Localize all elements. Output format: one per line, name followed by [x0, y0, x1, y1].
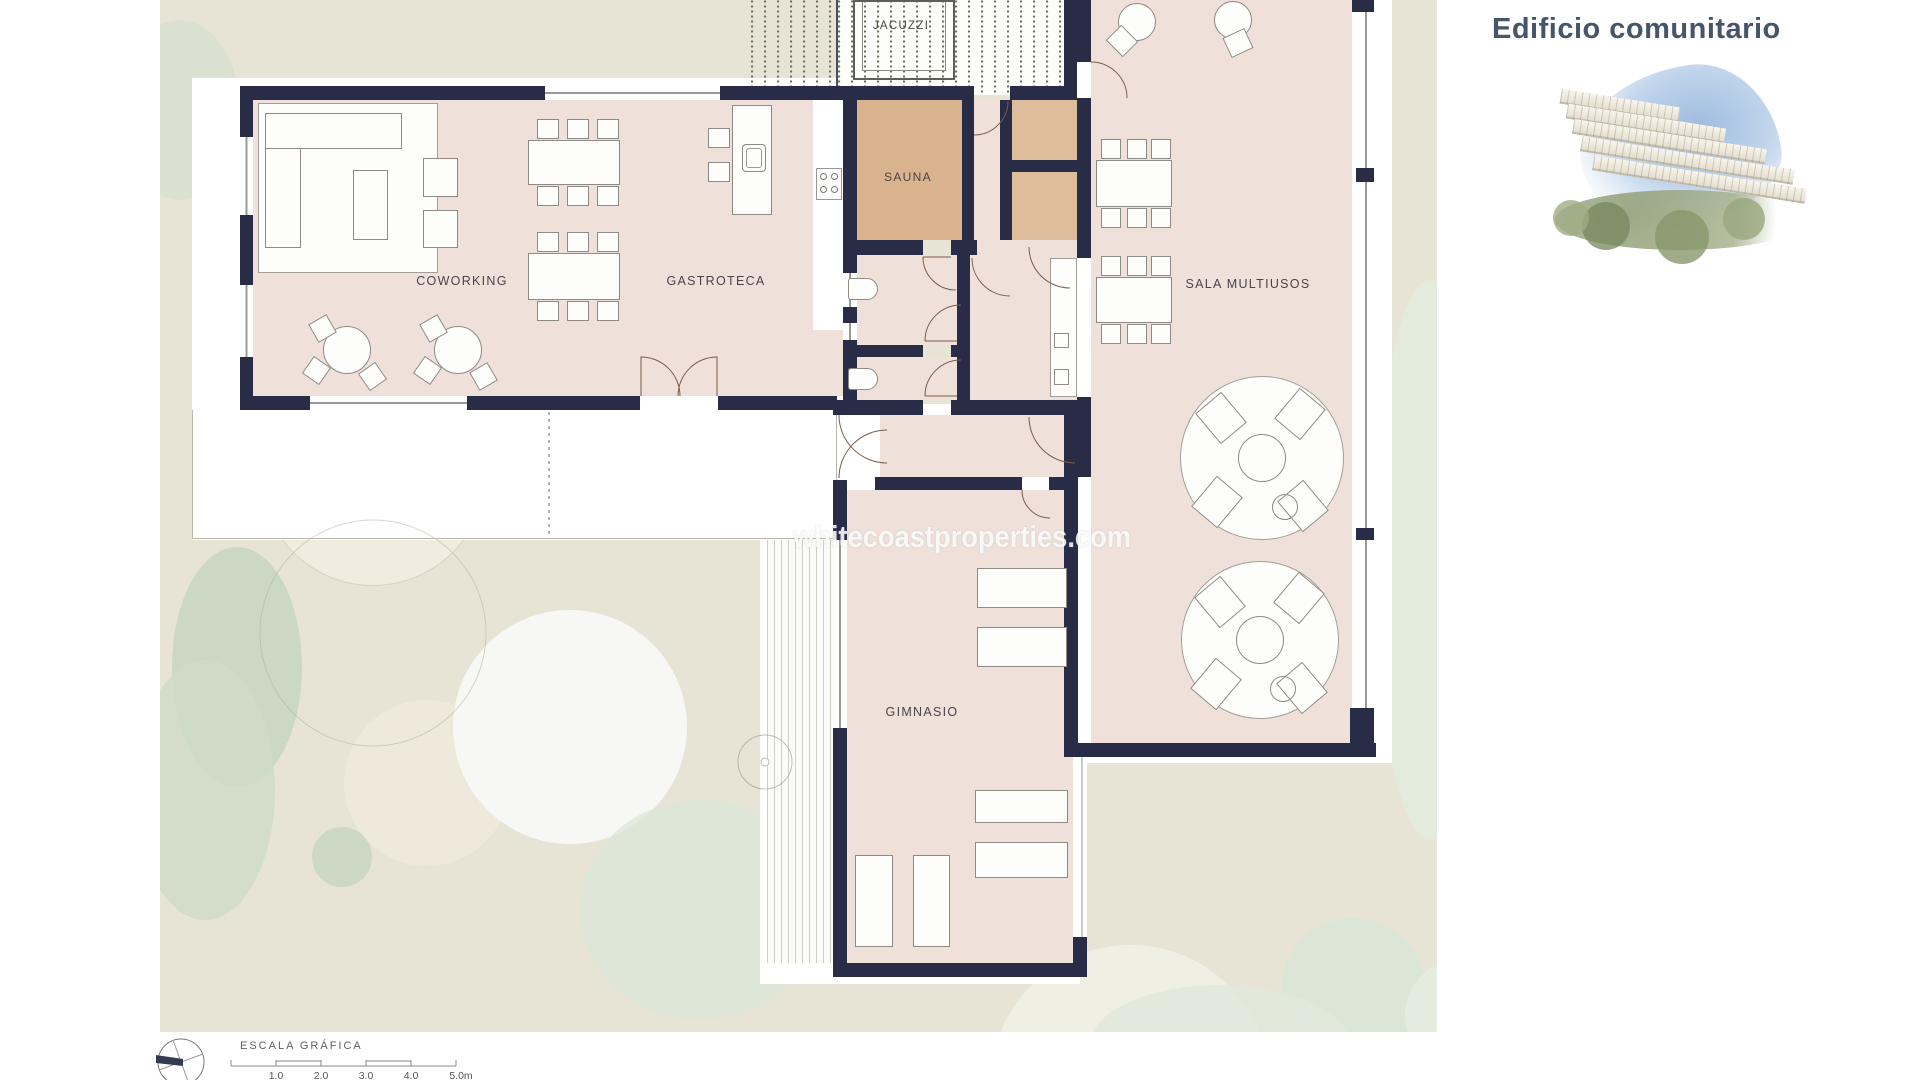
chair [1101, 324, 1121, 344]
wall [843, 100, 857, 255]
wall [833, 963, 1087, 977]
burner [831, 186, 838, 193]
wall [1077, 98, 1091, 258]
toilet [848, 278, 878, 300]
compass-icon [156, 1039, 204, 1080]
wall [240, 396, 310, 410]
jacuzzi-tub-inner [862, 2, 946, 71]
dining-table [1096, 160, 1172, 207]
watermark: whitecoastproperties.com [793, 519, 1131, 555]
armchair [423, 210, 458, 248]
wall [720, 86, 974, 100]
wall [843, 255, 857, 273]
wall [962, 100, 974, 240]
wall [843, 345, 923, 357]
chair [1127, 208, 1147, 228]
vegetation [1553, 200, 1589, 236]
wall [1000, 100, 1012, 240]
wall [1064, 0, 1077, 98]
sofa [265, 113, 402, 149]
wall [843, 240, 923, 255]
gym-machine [977, 568, 1067, 608]
room-label-sauna: SAUNA [884, 170, 932, 184]
chair [1101, 208, 1121, 228]
jacuzzi-deck [751, 0, 837, 95]
vegetation [1723, 198, 1765, 240]
chair [567, 119, 589, 139]
wall [1077, 0, 1091, 62]
wall [843, 307, 857, 323]
chair [537, 186, 559, 206]
burner [831, 173, 838, 180]
dining-table [1096, 277, 1172, 323]
sofa [265, 148, 301, 248]
stove [816, 168, 842, 200]
wall [1356, 168, 1374, 182]
floor-plan-page: JACUZZI SAUNA COWORKING GASTROTECA SALA … [0, 0, 1920, 1080]
deck-boardwalk [767, 540, 833, 963]
kitchen-counter-strip [813, 100, 843, 330]
chair [1151, 256, 1171, 276]
wall [240, 86, 545, 100]
stool [708, 162, 730, 182]
scale-bar-label: ESCALA GRÁFICA [240, 1040, 363, 1052]
wall [833, 400, 923, 415]
window [240, 285, 253, 357]
chair [537, 301, 559, 321]
window [310, 396, 467, 410]
window [1358, 12, 1374, 168]
vegetation [1655, 210, 1709, 264]
wall [951, 240, 977, 255]
dining-table [528, 253, 620, 300]
chair [597, 186, 619, 206]
sink-basin [746, 148, 762, 168]
chair [1151, 324, 1171, 344]
wall [1073, 937, 1087, 977]
window [833, 540, 847, 728]
wall [951, 400, 1077, 415]
wall [718, 396, 837, 410]
toilet [848, 368, 878, 390]
chair [1127, 324, 1147, 344]
closet-unit [1054, 333, 1069, 348]
gym-machine [977, 627, 1067, 667]
chair [567, 301, 589, 321]
passage [974, 100, 1000, 240]
chair [597, 232, 619, 252]
burner [820, 186, 827, 193]
wall [875, 477, 1022, 490]
wall [467, 396, 640, 410]
chair [1127, 139, 1147, 159]
lounge-table-small [1270, 676, 1296, 702]
jacuzzi-tub [853, 0, 955, 80]
vegetation [1582, 202, 1630, 250]
burner [820, 173, 827, 180]
chair [1151, 208, 1171, 228]
wall [1012, 160, 1077, 172]
scale-tick-label: 3.0 [359, 1070, 374, 1080]
chair [1101, 139, 1121, 159]
stool [708, 128, 730, 148]
chair [537, 119, 559, 139]
window [1358, 182, 1374, 528]
chair [1101, 256, 1121, 276]
gym-machine [975, 842, 1068, 878]
chair [537, 232, 559, 252]
wall [240, 215, 253, 285]
lounge-table [1236, 616, 1284, 664]
lounge-table-small [1272, 494, 1298, 520]
scale-tick-label: 4.0 [404, 1070, 419, 1080]
wall [957, 255, 970, 405]
gym-mat [855, 855, 893, 947]
window [545, 86, 720, 100]
room-label-gastroteca: GASTROTECA [666, 274, 765, 288]
chair [567, 186, 589, 206]
wall [1352, 0, 1374, 12]
chair [1127, 256, 1147, 276]
room-label-jacuzzi: JACUZZI [873, 20, 929, 32]
coffee-table [353, 170, 388, 240]
gym-machine [975, 790, 1068, 823]
dining-table [528, 140, 620, 185]
wall [1077, 397, 1091, 477]
window [240, 137, 253, 215]
chair [597, 301, 619, 321]
building-illustration-icon [1545, 62, 1790, 274]
scale-tick-label: 5.0m [449, 1070, 472, 1080]
room-label-sala-multiusos: SALA MULTIUSOS [1186, 277, 1311, 291]
room-label-gimnasio: GIMNASIO [886, 705, 959, 719]
window [1077, 757, 1087, 937]
gym-mat [913, 855, 950, 947]
page-title: Edificio comunitario [1492, 13, 1781, 46]
terrace [192, 410, 837, 539]
window [843, 323, 857, 340]
window [1358, 540, 1374, 708]
wall [240, 86, 253, 137]
hall [880, 415, 1077, 477]
planting-blob [312, 827, 372, 887]
wall [1356, 528, 1374, 540]
wall [1350, 708, 1374, 757]
wall [1049, 477, 1064, 490]
chair [1151, 139, 1171, 159]
chair [567, 232, 589, 252]
scale-tick-label: 2.0 [314, 1070, 329, 1080]
wall [1064, 743, 1376, 757]
chair [597, 119, 619, 139]
scale-tick-label: 1.0 [269, 1070, 284, 1080]
scale-ruler [231, 1060, 456, 1066]
lounge-table [1238, 434, 1286, 482]
room-wc-1 [857, 255, 957, 345]
wall [833, 728, 847, 963]
closet-unit [1054, 369, 1069, 385]
sink [742, 144, 766, 172]
armchair [423, 158, 458, 197]
room-label-coworking: COWORKING [416, 274, 508, 288]
